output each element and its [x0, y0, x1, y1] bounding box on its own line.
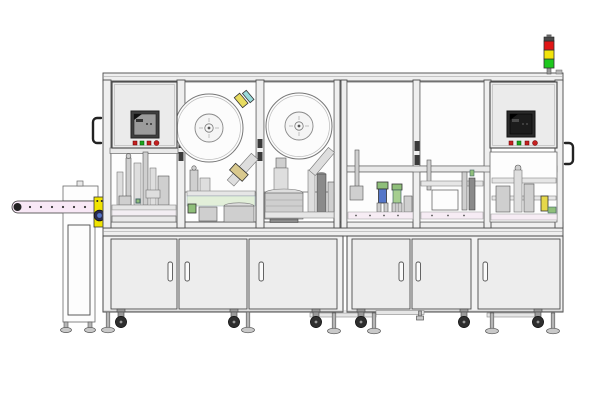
machine-drawing	[0, 0, 600, 400]
button-red[interactable]	[525, 141, 529, 145]
hinge-icon	[415, 155, 420, 165]
frame-post	[334, 80, 340, 228]
conveyor-motor-cap	[14, 203, 22, 211]
conveyor-foot-pad	[61, 327, 72, 332]
frame-post	[413, 80, 420, 228]
door-handle	[185, 262, 190, 281]
hinge-icon	[179, 152, 184, 161]
tower-light-green	[544, 59, 554, 68]
base-rail	[310, 313, 376, 317]
button-green[interactable]	[140, 141, 144, 145]
base-rail	[376, 311, 424, 315]
right-upper-window-2	[420, 82, 484, 166]
inner-conveyor	[348, 212, 413, 219]
tower-light-yellow	[544, 50, 554, 59]
yellow-unit	[541, 196, 548, 211]
left-side-handle[interactable]	[93, 118, 101, 143]
button-green[interactable]	[517, 141, 521, 145]
left-control-panel	[112, 82, 177, 148]
cabinet-door	[478, 239, 560, 309]
frame-post	[341, 80, 347, 228]
infeed-conveyor	[12, 181, 105, 333]
dark-cylinder	[317, 174, 326, 212]
button-red[interactable]	[147, 141, 151, 145]
base-rail	[487, 313, 535, 317]
button-red[interactable]	[133, 141, 137, 145]
door-handle	[168, 262, 173, 281]
inner-conveyor	[421, 212, 483, 219]
conveyor-foot-pad	[85, 327, 96, 332]
green-unit	[188, 204, 196, 213]
right-side-handle[interactable]	[565, 143, 573, 164]
station-rail	[112, 205, 176, 210]
bottom-beam	[103, 222, 563, 228]
tower-cap	[544, 37, 554, 41]
conveyor-end-box	[63, 186, 98, 201]
button-red-round[interactable]	[154, 141, 159, 146]
inner-conveyor	[491, 214, 557, 220]
button-red-round[interactable]	[533, 141, 538, 146]
machine-feet	[102, 309, 560, 334]
right-control-panel	[490, 82, 557, 148]
hinge-icon	[258, 139, 263, 148]
machine-illustration	[0, 0, 600, 400]
top-beam	[103, 73, 563, 81]
door-handle	[483, 262, 488, 281]
door-handle	[416, 262, 421, 281]
tower-cap-top	[547, 35, 552, 38]
door-handle	[259, 262, 264, 281]
conveyor-end-stub	[77, 181, 83, 186]
cabinet-base	[103, 227, 563, 312]
tower-pole	[547, 68, 551, 74]
tower-mount	[556, 70, 562, 74]
button-red[interactable]	[509, 141, 513, 145]
tower-light-red	[544, 41, 554, 50]
cabinet-door	[111, 239, 177, 309]
hinge-icon	[258, 152, 263, 161]
conveyor-belt	[12, 201, 104, 213]
signal-tower	[544, 35, 562, 75]
frame-post	[103, 80, 111, 228]
hinge-icon	[415, 141, 420, 151]
turntable-pot	[224, 206, 254, 222]
door-handle	[399, 262, 404, 281]
